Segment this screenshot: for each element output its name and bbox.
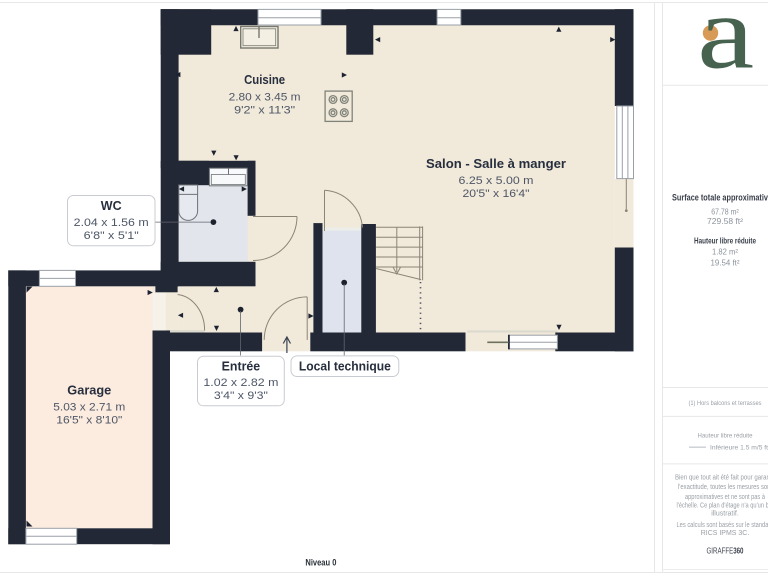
- svg-text:Local technique: Local technique: [299, 360, 391, 374]
- svg-text:a: a: [697, 0, 754, 91]
- svg-text:Salon - Salle à manger: Salon - Salle à manger: [426, 157, 566, 171]
- svg-text:1.02 x 2.82 m: 1.02 x 2.82 m: [203, 377, 278, 389]
- svg-text:Entrée: Entrée: [222, 360, 261, 374]
- svg-text:GIRAFFE360: GIRAFFE360: [707, 546, 744, 555]
- svg-text:3'4" x 9'3": 3'4" x 9'3": [214, 390, 268, 402]
- svg-text:Cuisine: Cuisine: [244, 73, 285, 87]
- svg-text:2.80 x 3.45 m: 2.80 x 3.45 m: [229, 92, 301, 104]
- svg-text:illustratif.: illustratif.: [711, 511, 739, 518]
- svg-text:l'échelle. Ce plan d'étage n'a: l'échelle. Ce plan d'étage n'a qu'un but: [677, 502, 768, 509]
- svg-text:approximatives et ne sont pas: approximatives et ne sont pas à: [685, 494, 765, 501]
- svg-text:Les calculs sont basés sur le: Les calculs sont basés sur le standard: [677, 522, 768, 529]
- svg-text:6.25 x 5.00 m: 6.25 x 5.00 m: [459, 175, 534, 187]
- svg-text:2.04 x 1.56 m: 2.04 x 1.56 m: [74, 217, 149, 229]
- svg-text:(1) Hors balcons et terrasses: (1) Hors balcons et terrasses: [689, 400, 762, 407]
- svg-text:20'5" x 16'4": 20'5" x 16'4": [463, 188, 530, 200]
- svg-text:19.54 ft²: 19.54 ft²: [711, 257, 740, 267]
- svg-text:9'2" x 11'3": 9'2" x 11'3": [234, 105, 295, 117]
- svg-text:Niveau 0: Niveau 0: [305, 558, 336, 569]
- svg-text:1.82 m²: 1.82 m²: [712, 246, 738, 256]
- svg-text:Garage: Garage: [67, 384, 111, 398]
- svg-text:16'5" x 8'10": 16'5" x 8'10": [56, 414, 122, 426]
- svg-text:67.78 m²: 67.78 m²: [711, 207, 739, 217]
- svg-text:Inférieure 1.5 m/5 ft: Inférieure 1.5 m/5 ft: [710, 445, 768, 452]
- svg-text:RICS IPMS 3C.: RICS IPMS 3C.: [701, 530, 750, 537]
- svg-text:l'exactitude, toutes les mesur: l'exactitude, toutes les mesures sont: [678, 484, 768, 491]
- svg-text:Hauteur libre réduite: Hauteur libre réduite: [698, 432, 753, 439]
- svg-text:Hauteur libre réduite: Hauteur libre réduite: [694, 236, 757, 245]
- svg-text:WC: WC: [101, 199, 122, 213]
- svg-text:Bien que tout ait été fait pou: Bien que tout ait été fait pour garantir: [675, 474, 768, 481]
- svg-text:6'8" x 5'1": 6'8" x 5'1": [84, 230, 139, 242]
- svg-text:5.03 x 2.71 m: 5.03 x 2.71 m: [53, 401, 125, 413]
- svg-text:Surface totale approximative(1: Surface totale approximative(1): [672, 193, 768, 203]
- svg-text:729.58 ft²: 729.58 ft²: [707, 216, 743, 226]
